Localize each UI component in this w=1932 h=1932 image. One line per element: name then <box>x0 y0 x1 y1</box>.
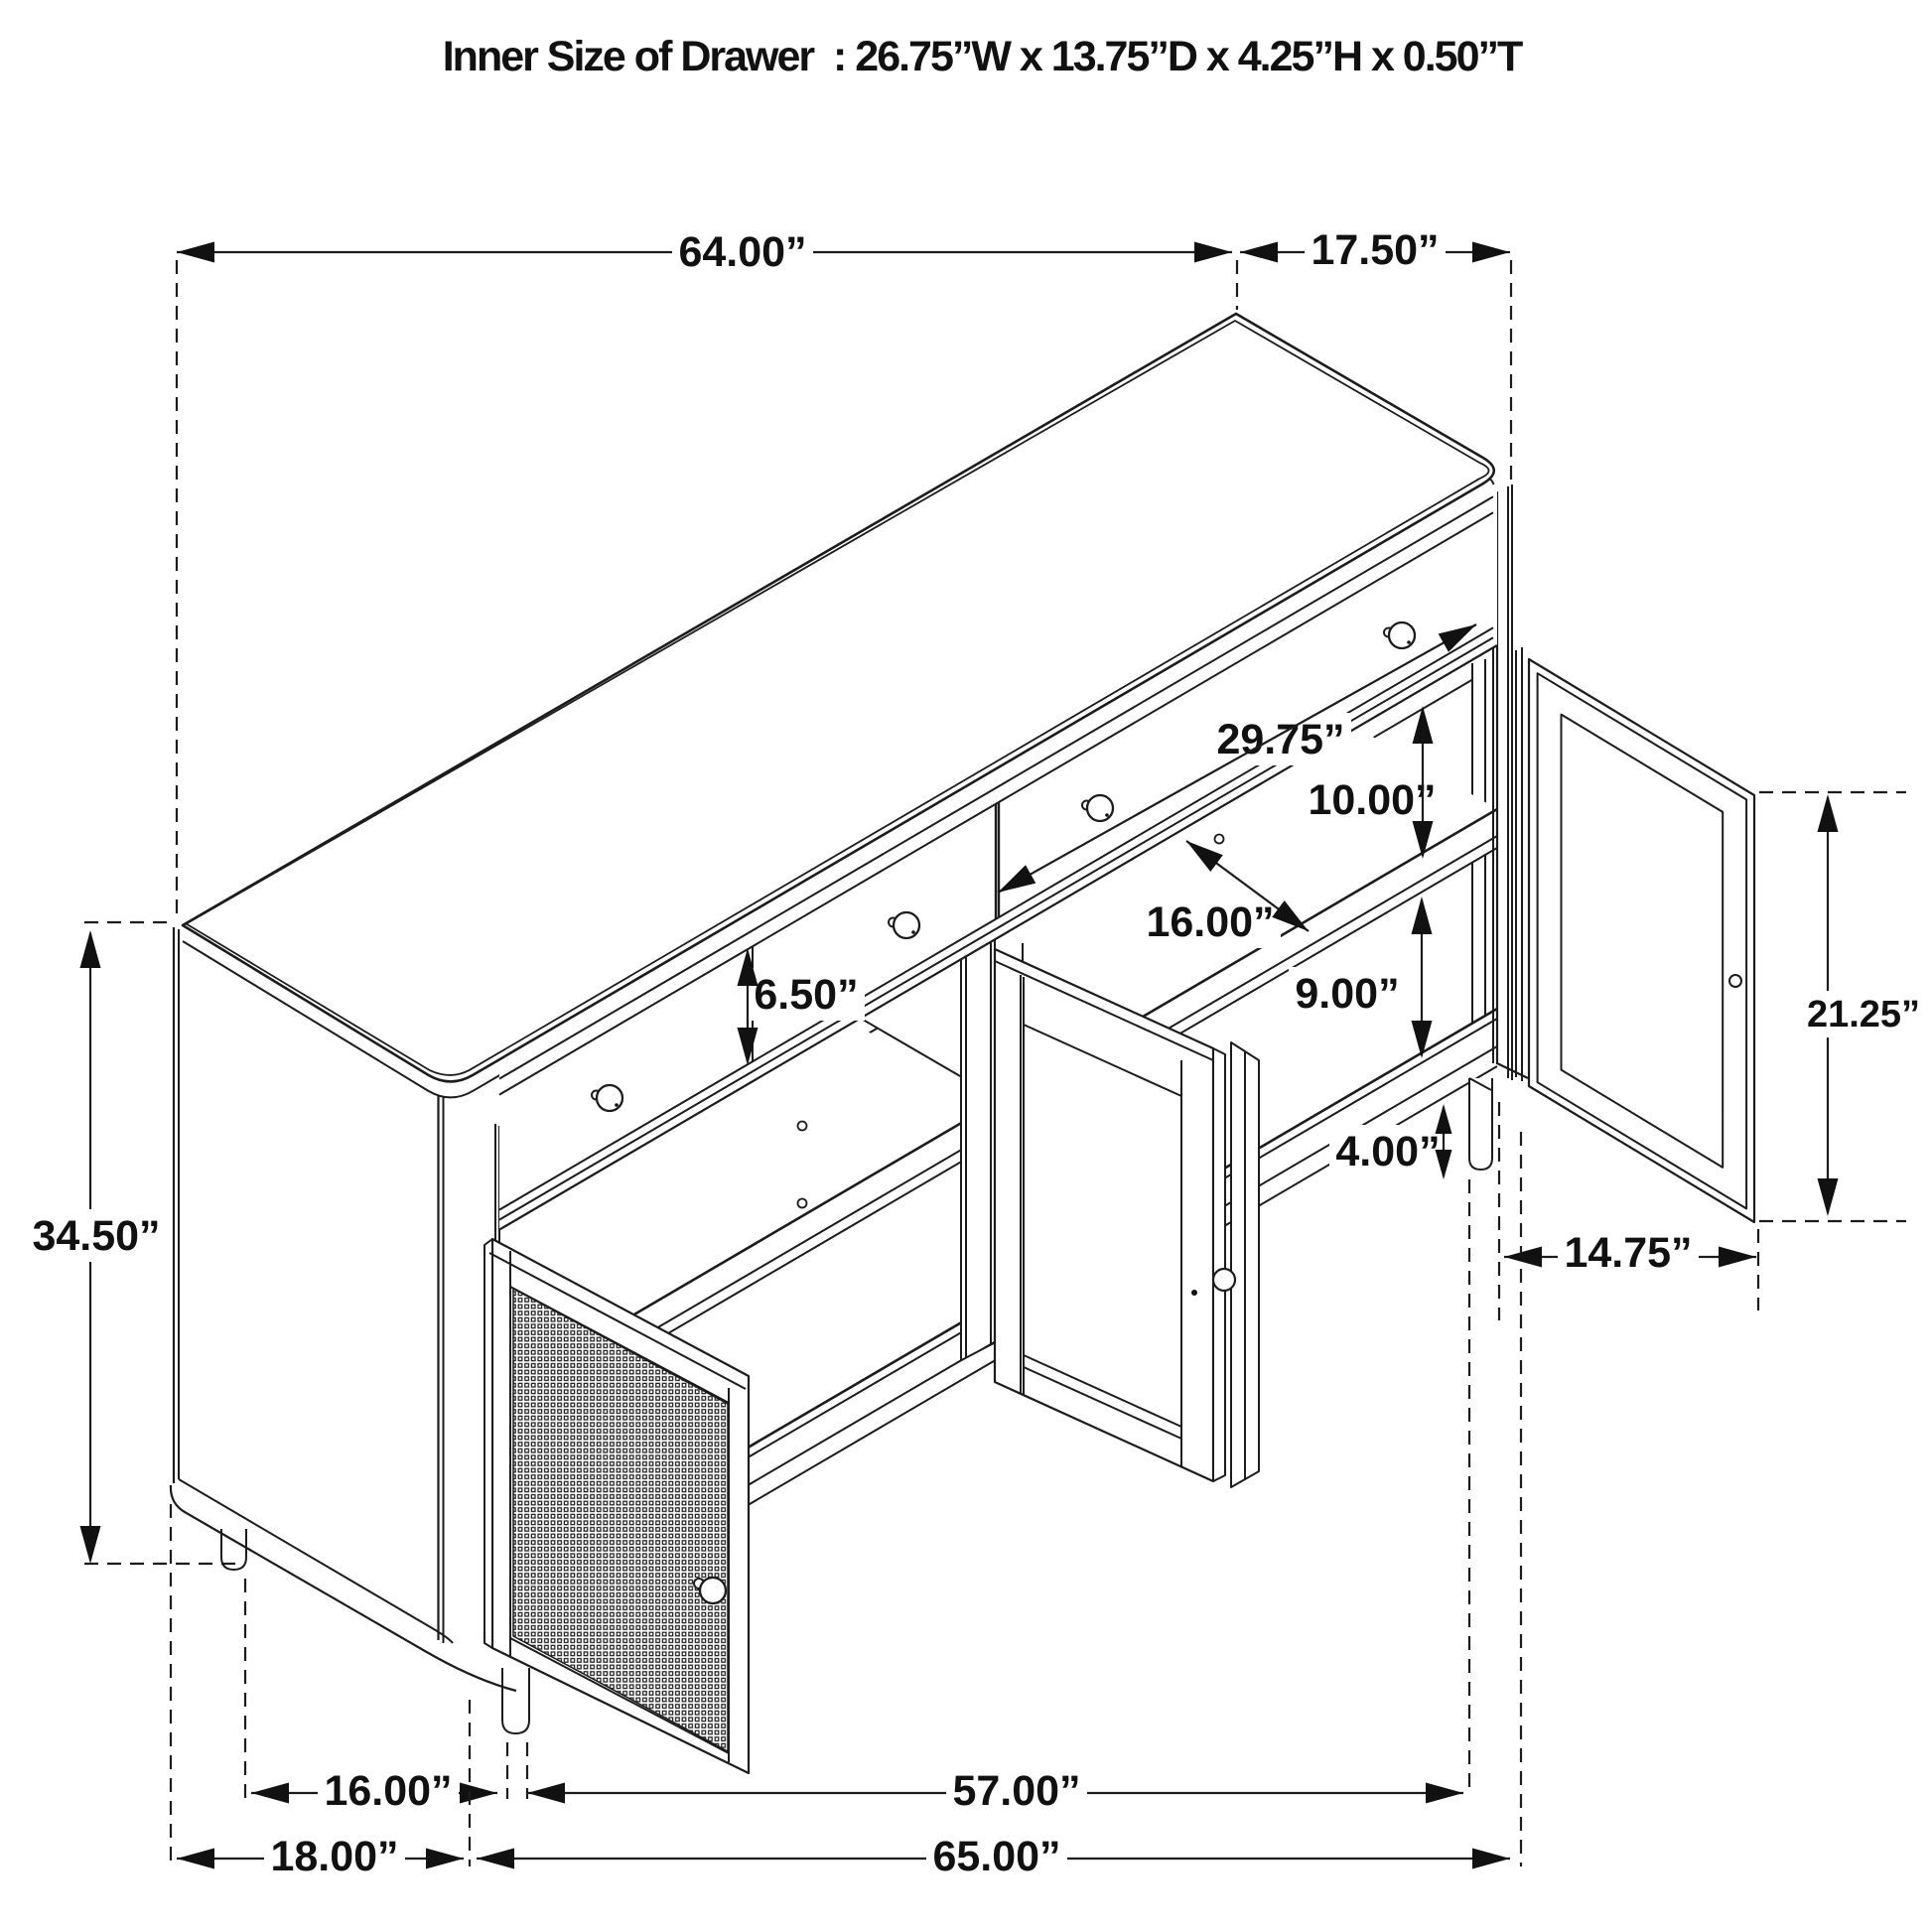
svg-text:Inner Size of Drawer : 26.75”: Inner Size of Drawer : 26.75”W x 13.75”D… <box>443 33 1523 80</box>
svg-text:65.00”: 65.00” <box>932 1833 1060 1880</box>
svg-text:64.00”: 64.00” <box>678 228 806 276</box>
svg-text:9.00”: 9.00” <box>1295 970 1399 1018</box>
svg-text:6.50”: 6.50” <box>754 971 858 1019</box>
svg-text:17.50”: 17.50” <box>1311 226 1439 274</box>
svg-text:21.25”: 21.25” <box>1807 994 1920 1035</box>
svg-text:4.00”: 4.00” <box>1335 1128 1440 1175</box>
svg-text:18.00”: 18.00” <box>270 1833 398 1880</box>
svg-text:57.00”: 57.00” <box>952 1767 1080 1815</box>
svg-text:14.75”: 14.75” <box>1564 1229 1692 1277</box>
svg-text:16.00”: 16.00” <box>324 1767 452 1815</box>
svg-text:29.75”: 29.75” <box>1216 716 1344 763</box>
svg-text:10.00”: 10.00” <box>1308 776 1436 824</box>
svg-text:16.00”: 16.00” <box>1146 898 1274 946</box>
svg-text:34.50”: 34.50” <box>32 1212 160 1260</box>
